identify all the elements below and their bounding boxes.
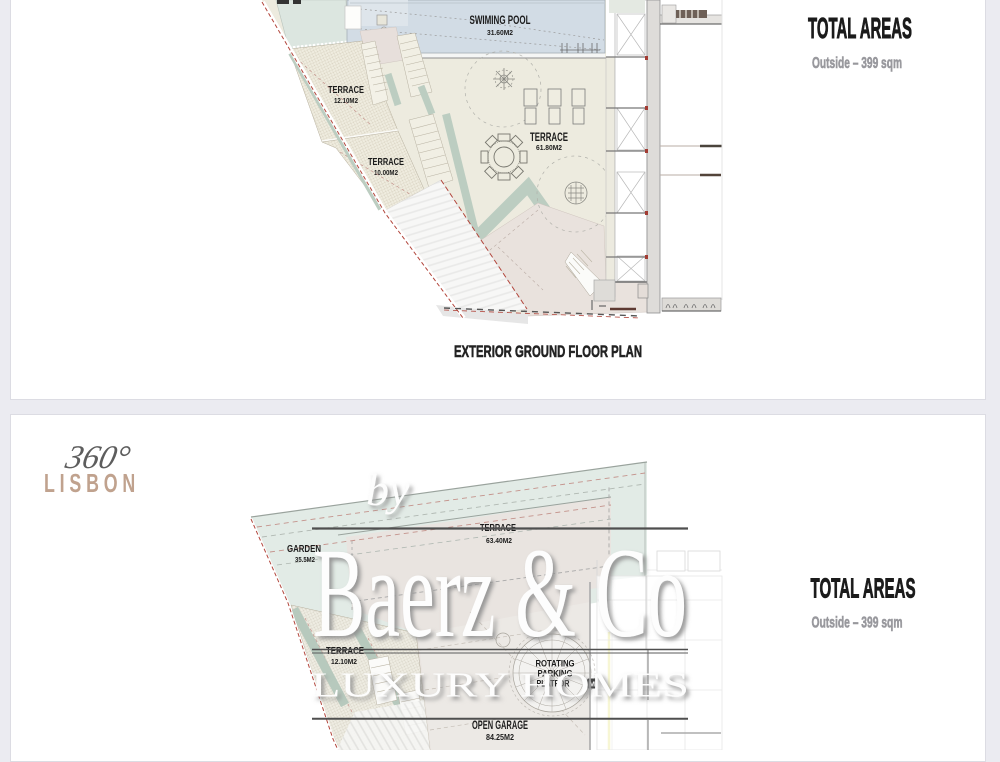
svg-text:TOTAL AREAS: TOTAL AREAS [811, 573, 916, 604]
svg-text:TERRACE: TERRACE [368, 156, 404, 168]
svg-text:31.60M2: 31.60M2 [487, 28, 513, 37]
svg-text:LISBON: LISBON [44, 468, 140, 498]
svg-text:84.25M2: 84.25M2 [486, 733, 514, 742]
svg-text:TERRACE: TERRACE [328, 84, 364, 96]
svg-text:Outside – 399 sqm: Outside – 399 sqm [812, 55, 902, 72]
svg-text:OPEN GARAGE: OPEN GARAGE [472, 718, 528, 732]
svg-text:LUXURY HOMES: LUXURY HOMES [311, 666, 689, 705]
svg-text:10.00M2: 10.00M2 [374, 170, 398, 177]
svg-text:61.80M2: 61.80M2 [536, 143, 562, 152]
svg-text:TOTAL AREAS: TOTAL AREAS [808, 13, 912, 45]
svg-text:Baerz & Co: Baerz & Co [313, 522, 687, 664]
svg-text:by: by [366, 464, 410, 515]
svg-text:EXTERIOR GROUND FLOOR PLAN: EXTERIOR GROUND FLOOR PLAN [454, 342, 642, 361]
svg-text:Outside – 399 sqm: Outside – 399 sqm [812, 615, 903, 632]
svg-text:SWIMING POOL: SWIMING POOL [470, 15, 531, 27]
svg-text:12.10M2: 12.10M2 [334, 98, 358, 105]
